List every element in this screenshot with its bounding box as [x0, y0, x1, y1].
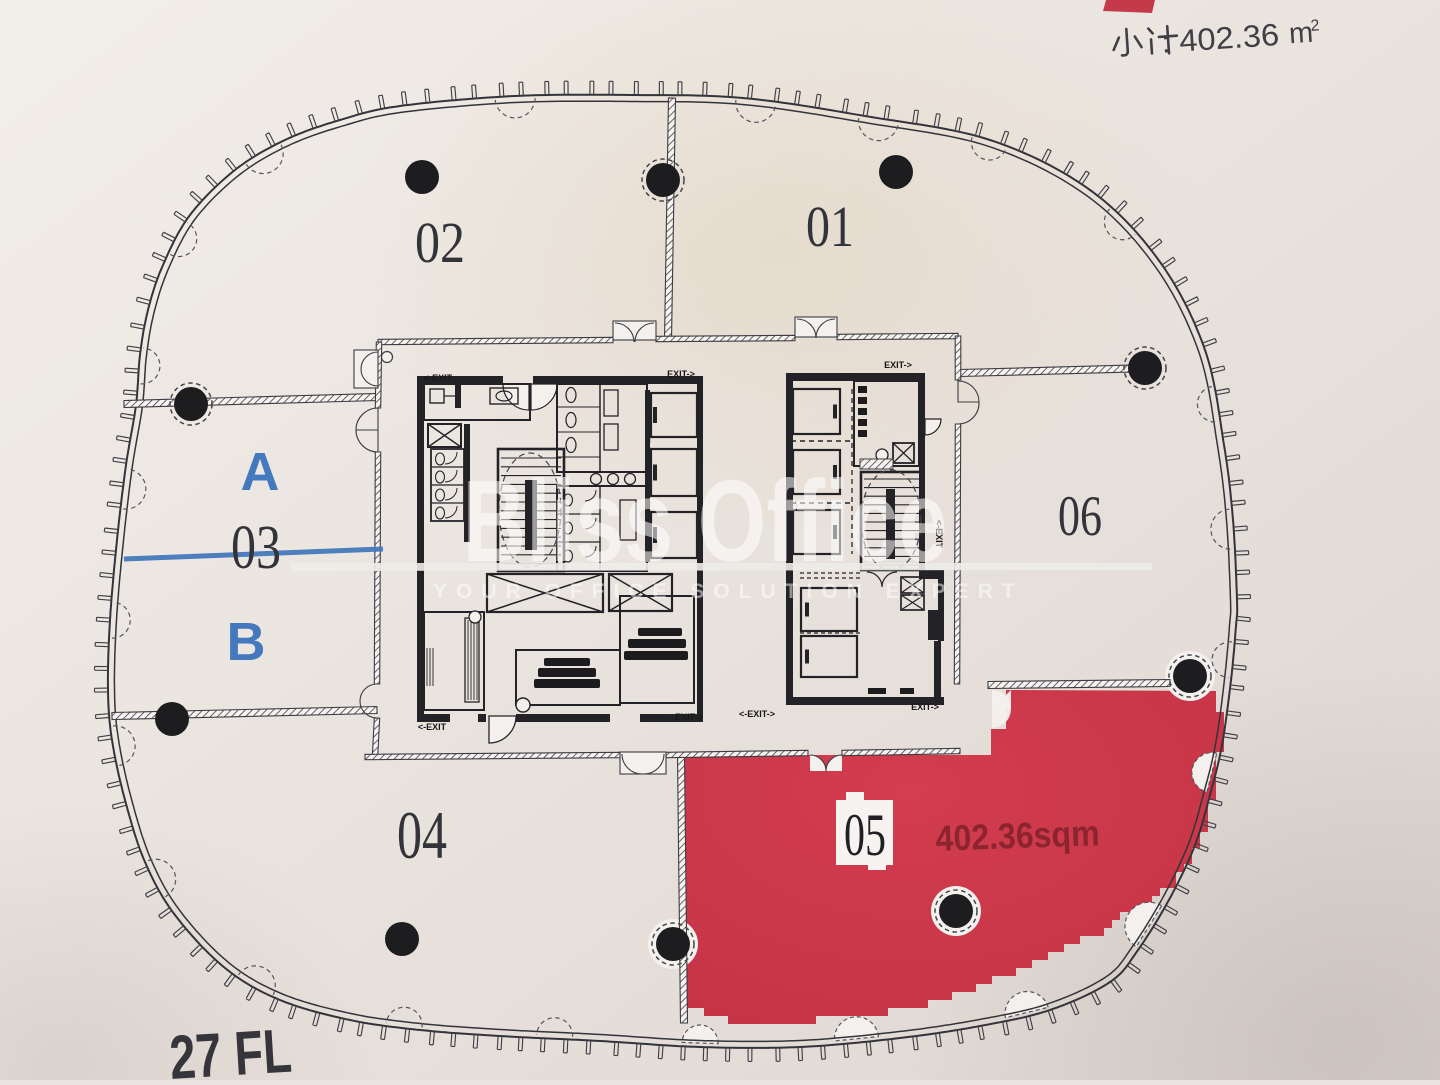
svg-text:01: 01 — [806, 194, 854, 259]
svg-text:03: 03 — [231, 514, 281, 582]
svg-text:<-EXIT: <-EXIT — [424, 373, 453, 383]
svg-text:05: 05 — [844, 802, 886, 868]
svg-text:EXIT->: EXIT-> — [911, 702, 939, 712]
svg-text:EXIT->: EXIT-> — [884, 360, 912, 370]
svg-text:06: 06 — [1058, 485, 1102, 548]
svg-text:EXIT->: EXIT-> — [667, 369, 695, 379]
svg-text:04: 04 — [397, 797, 447, 873]
svg-text:A: A — [241, 442, 280, 502]
svg-text:<-EXIT: <-EXIT — [418, 722, 447, 732]
svg-text:402.36sqm: 402.36sqm — [935, 812, 1100, 859]
svg-text:<-EXIT->: <-EXIT-> — [739, 709, 775, 719]
svg-text:2: 2 — [1310, 17, 1320, 35]
svg-text:EXIT->: EXIT-> — [675, 712, 703, 722]
svg-text:YOUR OFFICE SOLUTION EXPERT: YOUR OFFICE SOLUTION EXPERT — [433, 580, 1024, 603]
svg-text:27 FL: 27 FL — [168, 1017, 294, 1080]
svg-text:Bliss Office: Bliss Office — [463, 456, 948, 586]
svg-text:02: 02 — [415, 210, 465, 275]
svg-text:B: B — [227, 612, 266, 672]
